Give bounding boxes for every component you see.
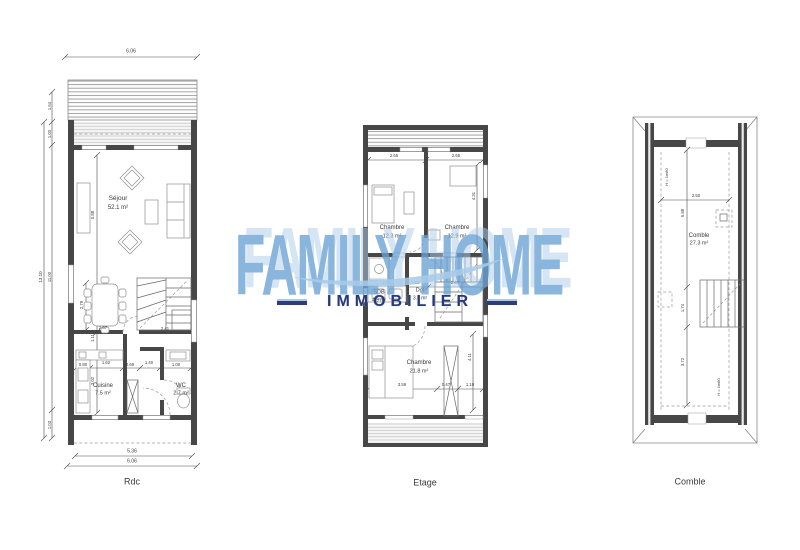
comble-walls <box>645 123 747 425</box>
etage-plan <box>363 125 488 447</box>
veranda-hatch <box>74 122 191 145</box>
rdc-duct <box>127 380 138 413</box>
comble-wall-gap-left <box>648 123 650 425</box>
cuisine-fixtures <box>76 350 123 413</box>
sejour-furniture <box>77 166 190 333</box>
comble-windows <box>686 138 706 424</box>
terrace-hatch <box>68 80 197 120</box>
wc-fixtures <box>166 350 190 408</box>
rdc-plan <box>41 54 200 469</box>
etage-roof-hatch <box>368 130 483 147</box>
comble-plan <box>633 117 757 443</box>
floorplan-drawings <box>0 0 800 550</box>
etage-wardrobe <box>444 346 458 416</box>
comble-dimension-lines <box>658 147 732 408</box>
comble-chimney <box>720 214 727 221</box>
comble-wall-gap-right <box>742 123 744 425</box>
floorplan-page: 6.0613.101.641.0011.001.03Séjour52.1 m²5… <box>0 0 800 550</box>
etage-balcony-hatch <box>368 423 483 443</box>
sdb-fixtures <box>368 258 406 302</box>
etage-stairs <box>435 257 483 322</box>
